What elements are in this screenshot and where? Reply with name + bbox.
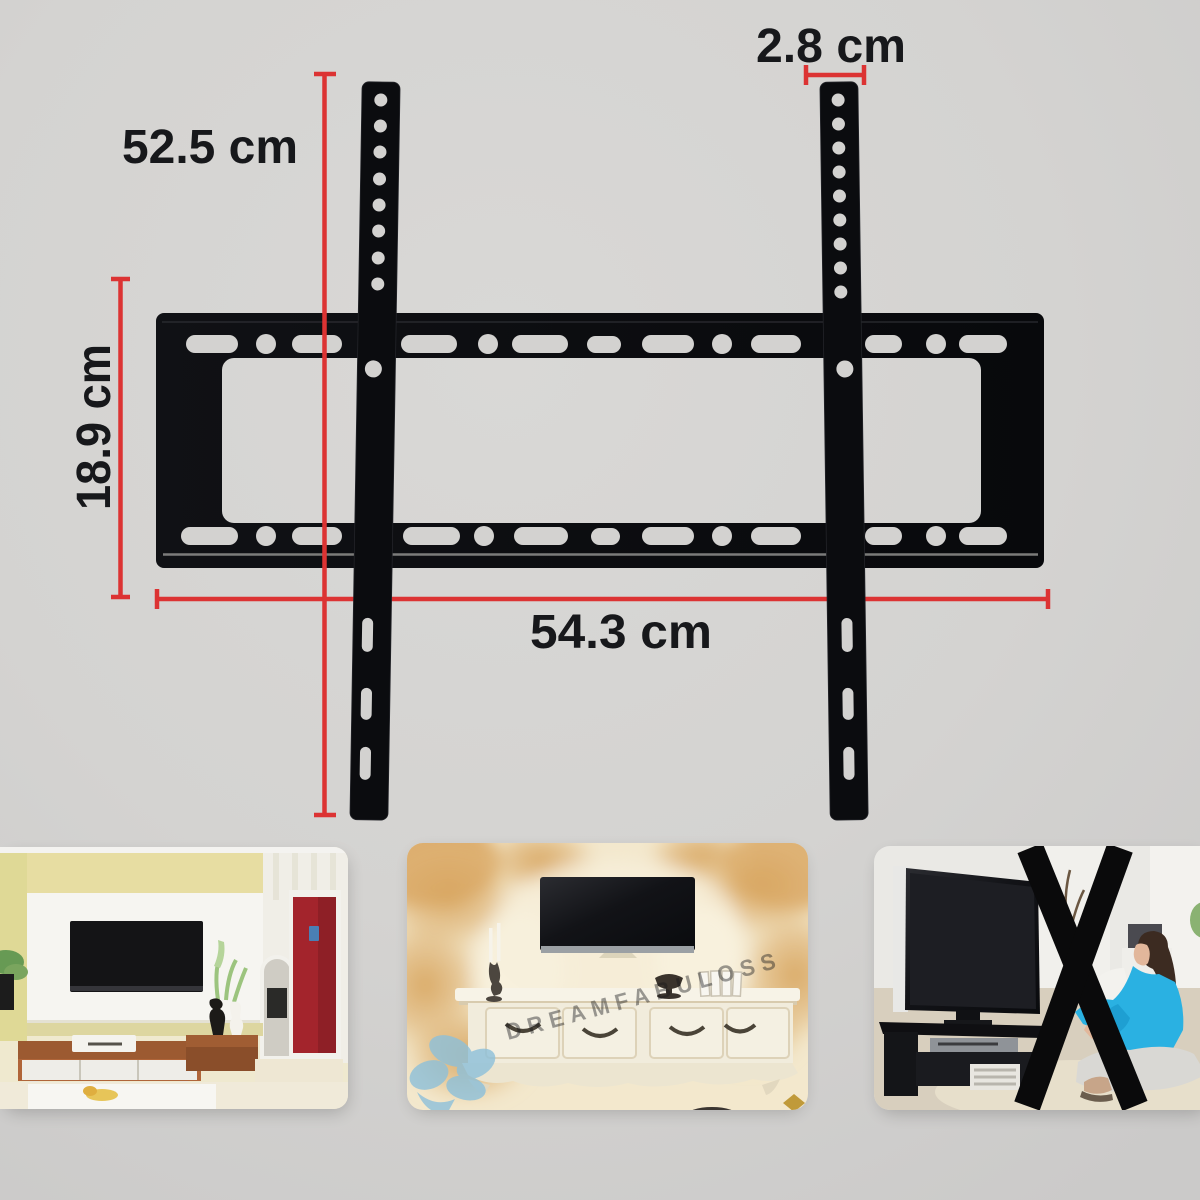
svg-text:18.9 cm: 18.9 cm	[68, 344, 121, 510]
svg-text:52.5 cm: 52.5 cm	[122, 121, 298, 174]
svg-text:2.8 cm: 2.8 cm	[756, 20, 906, 73]
svg-text:54.3 cm: 54.3 cm	[530, 606, 712, 659]
